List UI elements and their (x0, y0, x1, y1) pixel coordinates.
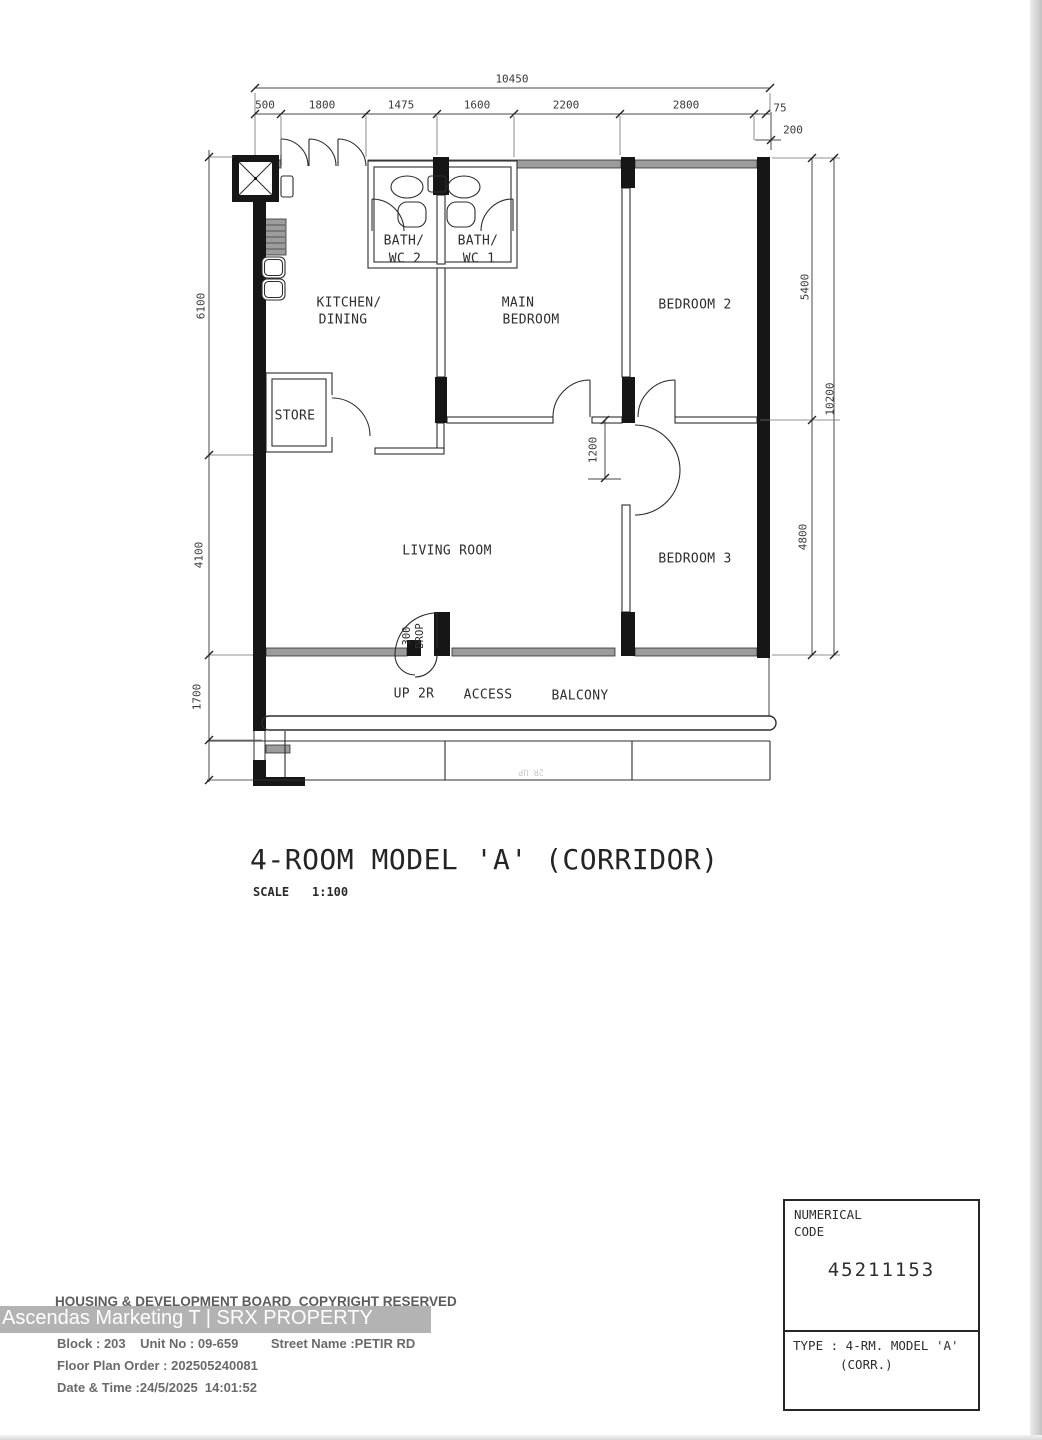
balcony-railing (207, 716, 776, 780)
room-label-main-bedroom-line2: BEDROOM (503, 314, 560, 327)
room-label-bath2-line2: WC 2 (389, 253, 422, 266)
label-balcony: BALCONY (552, 690, 609, 703)
footer-order-line: Floor Plan Order : 202505240081 (57, 1358, 258, 1373)
refuse-chute (232, 155, 293, 202)
label-up-2r: UP 2R (394, 688, 435, 701)
dim-wall-offset-200: 200 (783, 125, 803, 136)
page-edge-right (1030, 0, 1042, 1440)
room-label-bedroom2: BEDROOM 2 (658, 299, 731, 312)
dim-right-4800: 4800 (798, 524, 809, 551)
numerical-code-value: 45211153 (785, 1261, 978, 1280)
label-stair-note: 2R UP (518, 767, 544, 776)
watermark-band: Ascendas Marketing T | SRX PROPERTY (0, 1306, 431, 1333)
wall-gap-lines (254, 731, 265, 760)
floor-plan-page: 10450 500 1800 1475 1600 2200 2800 75 20… (0, 0, 1042, 1440)
room-label-bath1-line2: WC 1 (463, 253, 496, 266)
type-line1: TYPE : 4-RM. MODEL 'A' (793, 1340, 959, 1353)
label-drop-line2: DROP (415, 623, 426, 648)
dim-left-1700: 1700 (192, 684, 203, 711)
dim-top-500: 500 (255, 100, 275, 111)
footer-block-line: Block : 203 Unit No : 09-659 Street Name… (57, 1336, 415, 1351)
dim-left-4100: 4100 (194, 542, 205, 569)
room-label-bath1-line1: BATH/ (458, 235, 499, 248)
room-label-store: STORE (275, 410, 316, 423)
dim-top-1800: 1800 (309, 100, 336, 111)
footer-datetime-line: Date & Time :24/5/2025 14:01:52 (57, 1380, 257, 1395)
dim-top-1600: 1600 (464, 100, 491, 111)
store-door-gap (329, 395, 343, 437)
dim-top-75: 75 (773, 103, 786, 114)
numerical-code-box: NUMERICAL CODE 45211153 (783, 1199, 980, 1334)
dim-right-5400: 5400 (800, 274, 811, 301)
dim-left-6100: 6100 (196, 293, 207, 320)
scale-label: SCALE (253, 885, 289, 899)
room-label-kitchen-line2: DINING (319, 314, 368, 327)
misc-thin-lines (588, 479, 769, 716)
dim-top-1475: 1475 (388, 100, 415, 111)
room-label-living: LIVING ROOM (402, 545, 491, 558)
scale-value: 1:100 (312, 885, 348, 899)
numerical-code-label-line1: NUMERICAL (794, 1209, 862, 1222)
page-edge-bottom (0, 1435, 1042, 1440)
type-line2: (CORR.) (840, 1359, 893, 1372)
numerical-code-label-line2: CODE (794, 1226, 824, 1239)
room-label-bedroom3: BEDROOM 3 (658, 553, 731, 566)
label-access: ACCESS (464, 689, 513, 702)
type-box: TYPE : 4-RM. MODEL 'A' (CORR.) (783, 1330, 980, 1411)
dim-overall-width: 10450 (495, 74, 528, 85)
room-label-main-bedroom-line1: MAIN (502, 297, 535, 310)
room-label-bath2-line1: BATH/ (384, 235, 425, 248)
label-drop-line1: 300 (402, 627, 413, 646)
dim-corridor-1200: 1200 (588, 437, 599, 464)
dim-top-2200: 2200 (553, 100, 580, 111)
dim-right-10200: 10200 (825, 382, 836, 415)
watermark-text: Ascendas Marketing T | SRX PROPERTY (2, 1307, 373, 1330)
dim-top-2800: 2800 (673, 100, 700, 111)
room-label-kitchen-line1: KITCHEN/ (316, 297, 381, 310)
page-title: 4-ROOM MODEL 'A' (CORRIDOR) (250, 843, 719, 876)
interior-walls (266, 161, 757, 612)
